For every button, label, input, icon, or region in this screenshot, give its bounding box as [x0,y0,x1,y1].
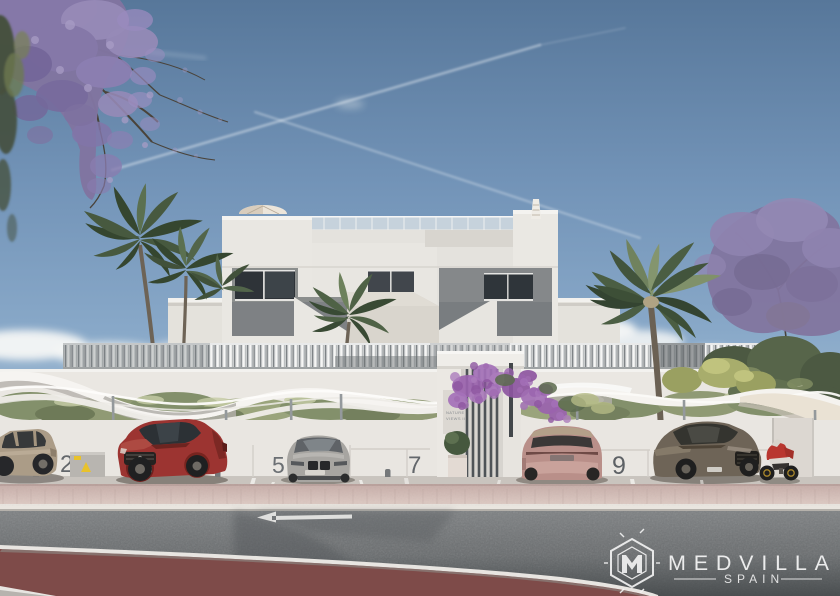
svg-text:5: 5 [272,452,285,478]
svg-text:SPAIN: SPAIN [724,572,784,586]
svg-text:NATURE: NATURE [446,410,465,415]
svg-text:9: 9 [612,452,626,480]
svg-text:7: 7 [408,452,421,479]
svg-text:VIEWS II: VIEWS II [446,416,465,421]
